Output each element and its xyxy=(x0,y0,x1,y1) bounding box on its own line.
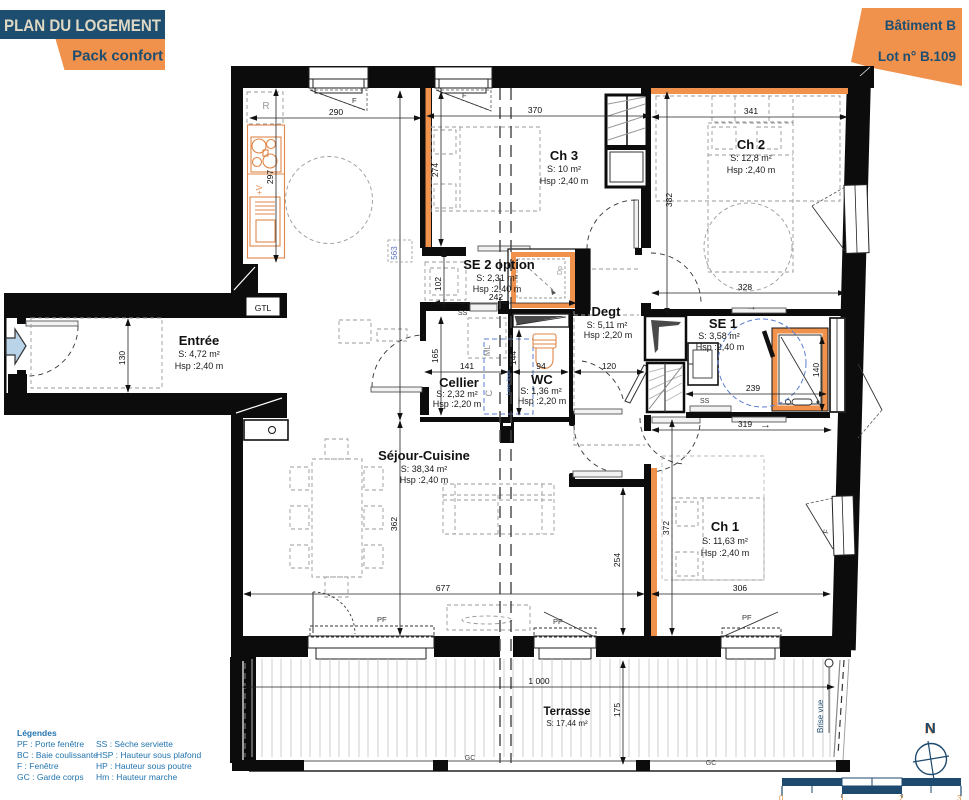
svg-text:Séjour-Cuisine: Séjour-Cuisine xyxy=(378,448,470,463)
svg-text:Degt: Degt xyxy=(592,304,622,319)
svg-text:GC: GC xyxy=(706,760,717,767)
svg-text:HP : Hauteur sous poutre: HP : Hauteur sous poutre xyxy=(96,761,192,771)
svg-text:290: 290 xyxy=(329,107,343,117)
svg-text:F: F xyxy=(462,91,467,100)
svg-text:0: 0 xyxy=(779,794,784,800)
svg-text:175: 175 xyxy=(612,703,622,717)
svg-text:S: 17,44 m²: S: 17,44 m² xyxy=(546,719,588,728)
svg-text:PF: PF xyxy=(553,617,563,626)
svg-text:370: 370 xyxy=(528,105,542,115)
svg-text:140: 140 xyxy=(811,363,821,377)
svg-text:Hsp :2,40 m: Hsp :2,40 m xyxy=(400,475,449,485)
svg-text:Hsp :2,40 m: Hsp :2,40 m xyxy=(727,165,776,175)
svg-text:306: 306 xyxy=(733,583,747,593)
svg-text:Bâtiment B: Bâtiment B xyxy=(885,18,957,33)
svg-text:S: 2,31 m²: S: 2,31 m² xyxy=(476,273,518,283)
svg-text:Hsp :2,40 m: Hsp :2,40 m xyxy=(540,176,589,186)
svg-text:Légendes: Légendes xyxy=(17,728,57,738)
svg-text:1 000: 1 000 xyxy=(528,676,550,686)
svg-text:F : Fenêtre: F : Fenêtre xyxy=(17,761,59,771)
svg-text:Hsp :2,40 m: Hsp :2,40 m xyxy=(175,361,224,371)
svg-text:102: 102 xyxy=(433,277,443,291)
svg-text:S: 2,32 m²: S: 2,32 m² xyxy=(436,389,478,399)
svg-text:Entrée: Entrée xyxy=(179,333,219,348)
svg-text:Pack confort: Pack confort xyxy=(72,48,163,65)
svg-text:GC : Garde corps: GC : Garde corps xyxy=(17,772,84,782)
svg-text:S: 3,58 m²: S: 3,58 m² xyxy=(698,331,740,341)
svg-text:297: 297 xyxy=(265,170,275,184)
svg-text:BC : Baie coulissante: BC : Baie coulissante xyxy=(17,750,98,760)
svg-text:Hsp :2,20 m: Hsp :2,20 m xyxy=(433,399,482,409)
svg-text:WC: WC xyxy=(531,372,553,387)
svg-text:S: 4,72 m²: S: 4,72 m² xyxy=(178,349,220,359)
svg-text:319: 319 xyxy=(738,419,752,429)
svg-text:N: N xyxy=(925,720,936,737)
svg-text:362: 362 xyxy=(389,517,399,531)
svg-text:274: 274 xyxy=(430,163,440,177)
svg-text:Cellier: Cellier xyxy=(439,375,479,390)
svg-text:PF : Porte fenêtre: PF : Porte fenêtre xyxy=(17,739,84,749)
svg-text:130: 130 xyxy=(117,351,127,365)
svg-text:Ch 2: Ch 2 xyxy=(737,137,765,152)
svg-text:S: 38,34 m²: S: 38,34 m² xyxy=(401,464,448,474)
svg-text:S: 1,36 m²: S: 1,36 m² xyxy=(520,386,562,396)
svg-text:PF: PF xyxy=(742,613,752,622)
svg-text:Hsp :2,40 m: Hsp :2,40 m xyxy=(473,284,522,294)
svg-text:Hsp :2,20 m: Hsp :2,20 m xyxy=(518,396,567,406)
svg-text:SS: SS xyxy=(700,398,710,405)
svg-text:HSP : Hauteur sous plafond: HSP : Hauteur sous plafond xyxy=(96,750,201,760)
svg-text:144: 144 xyxy=(508,351,518,365)
svg-text:Terrasse: Terrasse xyxy=(543,706,590,718)
svg-text:Lot n° B.109: Lot n° B.109 xyxy=(878,49,956,64)
svg-text:Hsp :2,40 m: Hsp :2,40 m xyxy=(701,548,750,558)
svg-text:S: 12,8 m²: S: 12,8 m² xyxy=(730,153,772,163)
svg-text:2: 2 xyxy=(899,794,904,800)
svg-text:Ch 1: Ch 1 xyxy=(711,519,739,534)
svg-text:Dp: Dp xyxy=(557,266,564,275)
svg-text:141: 141 xyxy=(460,361,474,371)
svg-text:165: 165 xyxy=(430,349,440,363)
svg-text:GTL: GTL xyxy=(255,303,272,313)
svg-text:+V: +V xyxy=(255,184,264,195)
svg-text:328: 328 xyxy=(738,282,752,292)
svg-text:94: 94 xyxy=(536,361,546,371)
svg-text:SS: SS xyxy=(458,310,468,317)
svg-text:PLAN DU LOGEMENT: PLAN DU LOGEMENT xyxy=(4,17,161,35)
svg-text:120: 120 xyxy=(602,361,616,371)
svg-text:ML: ML xyxy=(483,344,492,356)
svg-text:S: 11,63 m²: S: 11,63 m² xyxy=(702,536,748,546)
svg-text:254: 254 xyxy=(612,553,622,567)
svg-text:F: F xyxy=(352,96,357,105)
svg-text:PF: PF xyxy=(377,615,387,624)
svg-text:Hsp :2,40 m: Hsp :2,40 m xyxy=(696,342,745,352)
svg-text:Hm : Hauteur marche: Hm : Hauteur marche xyxy=(96,772,178,782)
svg-text:563: 563 xyxy=(390,246,399,260)
svg-text:Hsp :2,20 m: Hsp :2,20 m xyxy=(584,330,633,340)
svg-text:SE 2 option: SE 2 option xyxy=(463,257,535,272)
svg-text:341: 341 xyxy=(744,106,758,116)
svg-text:239: 239 xyxy=(746,383,760,393)
svg-text:→: → xyxy=(760,419,771,431)
svg-text:C: C xyxy=(484,390,494,397)
svg-text:R: R xyxy=(262,101,269,112)
svg-text:GC: GC xyxy=(465,755,476,762)
svg-text:S: 10 m²: S: 10 m² xyxy=(547,164,581,174)
svg-text:Brise vue: Brise vue xyxy=(816,699,825,733)
svg-text:Ch 3: Ch 3 xyxy=(550,148,578,163)
svg-text:SE 1: SE 1 xyxy=(709,316,737,331)
svg-text:382: 382 xyxy=(664,193,674,207)
svg-text:S: 5,11 m²: S: 5,11 m² xyxy=(587,320,628,330)
svg-text:SS : Sèche serviette: SS : Sèche serviette xyxy=(96,739,173,749)
svg-text:→: → xyxy=(746,301,757,313)
svg-text:372: 372 xyxy=(661,521,671,535)
svg-text:3: 3 xyxy=(957,794,962,800)
svg-text:677: 677 xyxy=(436,583,450,593)
svg-text:1: 1 xyxy=(840,794,845,800)
